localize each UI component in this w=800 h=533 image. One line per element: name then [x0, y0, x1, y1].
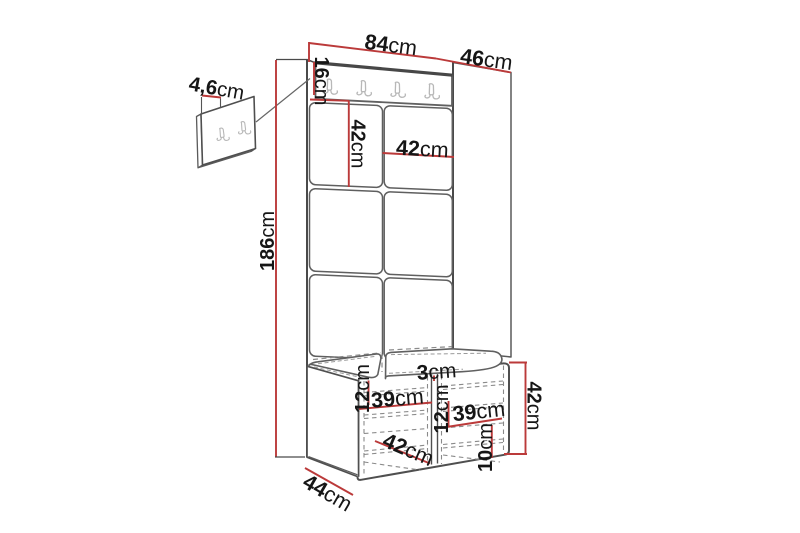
svg-text:3cm: 3cm — [416, 359, 457, 385]
svg-text:42cm: 42cm — [523, 382, 545, 431]
svg-text:84cm: 84cm — [363, 30, 418, 61]
svg-text:16cm: 16cm — [310, 57, 332, 106]
svg-text:39cm: 39cm — [370, 384, 424, 412]
svg-text:10cm: 10cm — [475, 423, 497, 472]
svg-text:42cm: 42cm — [395, 136, 449, 163]
svg-text:186cm: 186cm — [257, 211, 279, 271]
svg-text:12cm: 12cm — [431, 385, 453, 434]
svg-text:44cm: 44cm — [299, 469, 357, 516]
svg-text:42cm: 42cm — [347, 120, 369, 169]
svg-text:4,6cm: 4,6cm — [187, 72, 246, 104]
